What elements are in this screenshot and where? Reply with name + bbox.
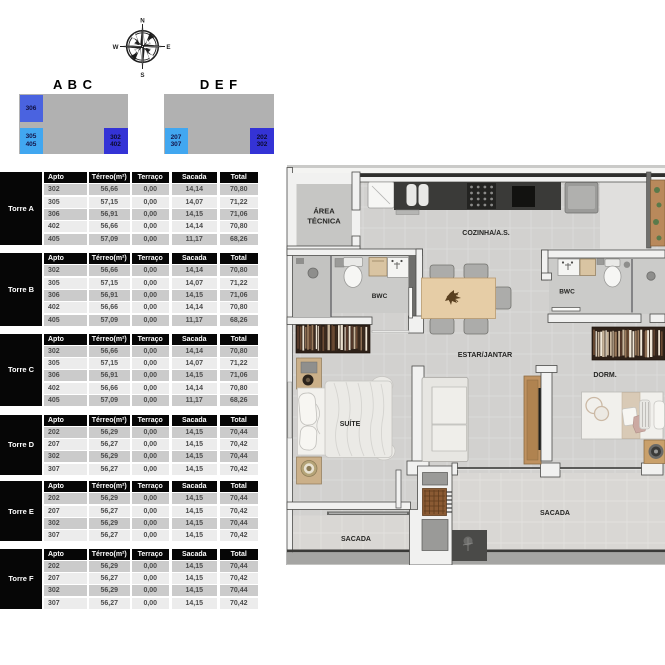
svg-text:ÁREA: ÁREA — [313, 207, 335, 216]
svg-text:N: N — [140, 18, 145, 25]
svg-text:SUÍTE: SUÍTE — [340, 419, 361, 428]
svg-text:E: E — [166, 44, 170, 51]
svg-text:SACADA: SACADA — [540, 510, 570, 517]
svg-text:W: W — [113, 44, 119, 51]
svg-text:ESTAR/JANTAR: ESTAR/JANTAR — [458, 350, 513, 359]
svg-text:DORM.: DORM. — [593, 372, 616, 379]
svg-text:S: S — [140, 72, 144, 78]
svg-text:BWC: BWC — [559, 289, 575, 296]
svg-text:TÉCNICA: TÉCNICA — [307, 217, 341, 226]
svg-text:COZINHA/A.S.: COZINHA/A.S. — [462, 230, 510, 237]
svg-text:BWC: BWC — [372, 293, 388, 300]
svg-text:SACADA: SACADA — [341, 536, 371, 543]
